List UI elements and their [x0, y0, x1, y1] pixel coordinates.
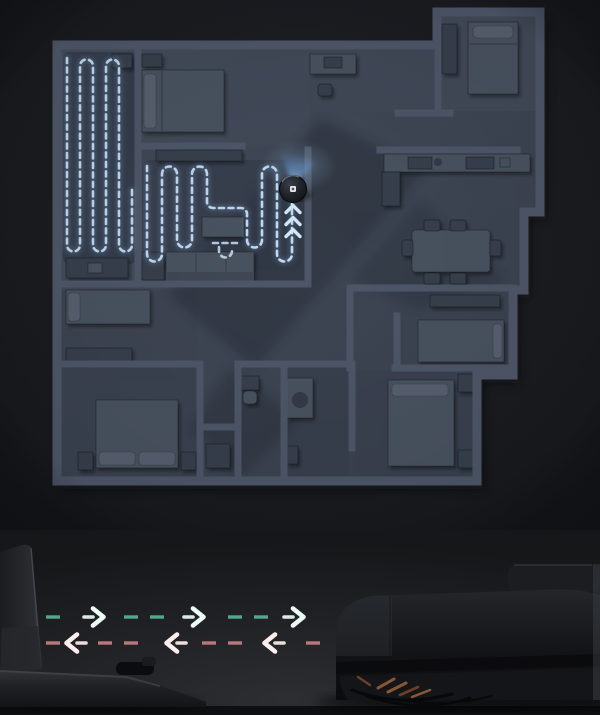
product-strip [0, 530, 600, 715]
lidar-turret-icon [508, 564, 600, 592]
promo-image [0, 0, 600, 715]
dock-base-sensor [142, 657, 156, 666]
map-vignette [0, 0, 600, 530]
dock-tower-lower [0, 626, 42, 673]
robot-edge-highlight [593, 564, 600, 700]
floorplan-map [0, 0, 600, 530]
